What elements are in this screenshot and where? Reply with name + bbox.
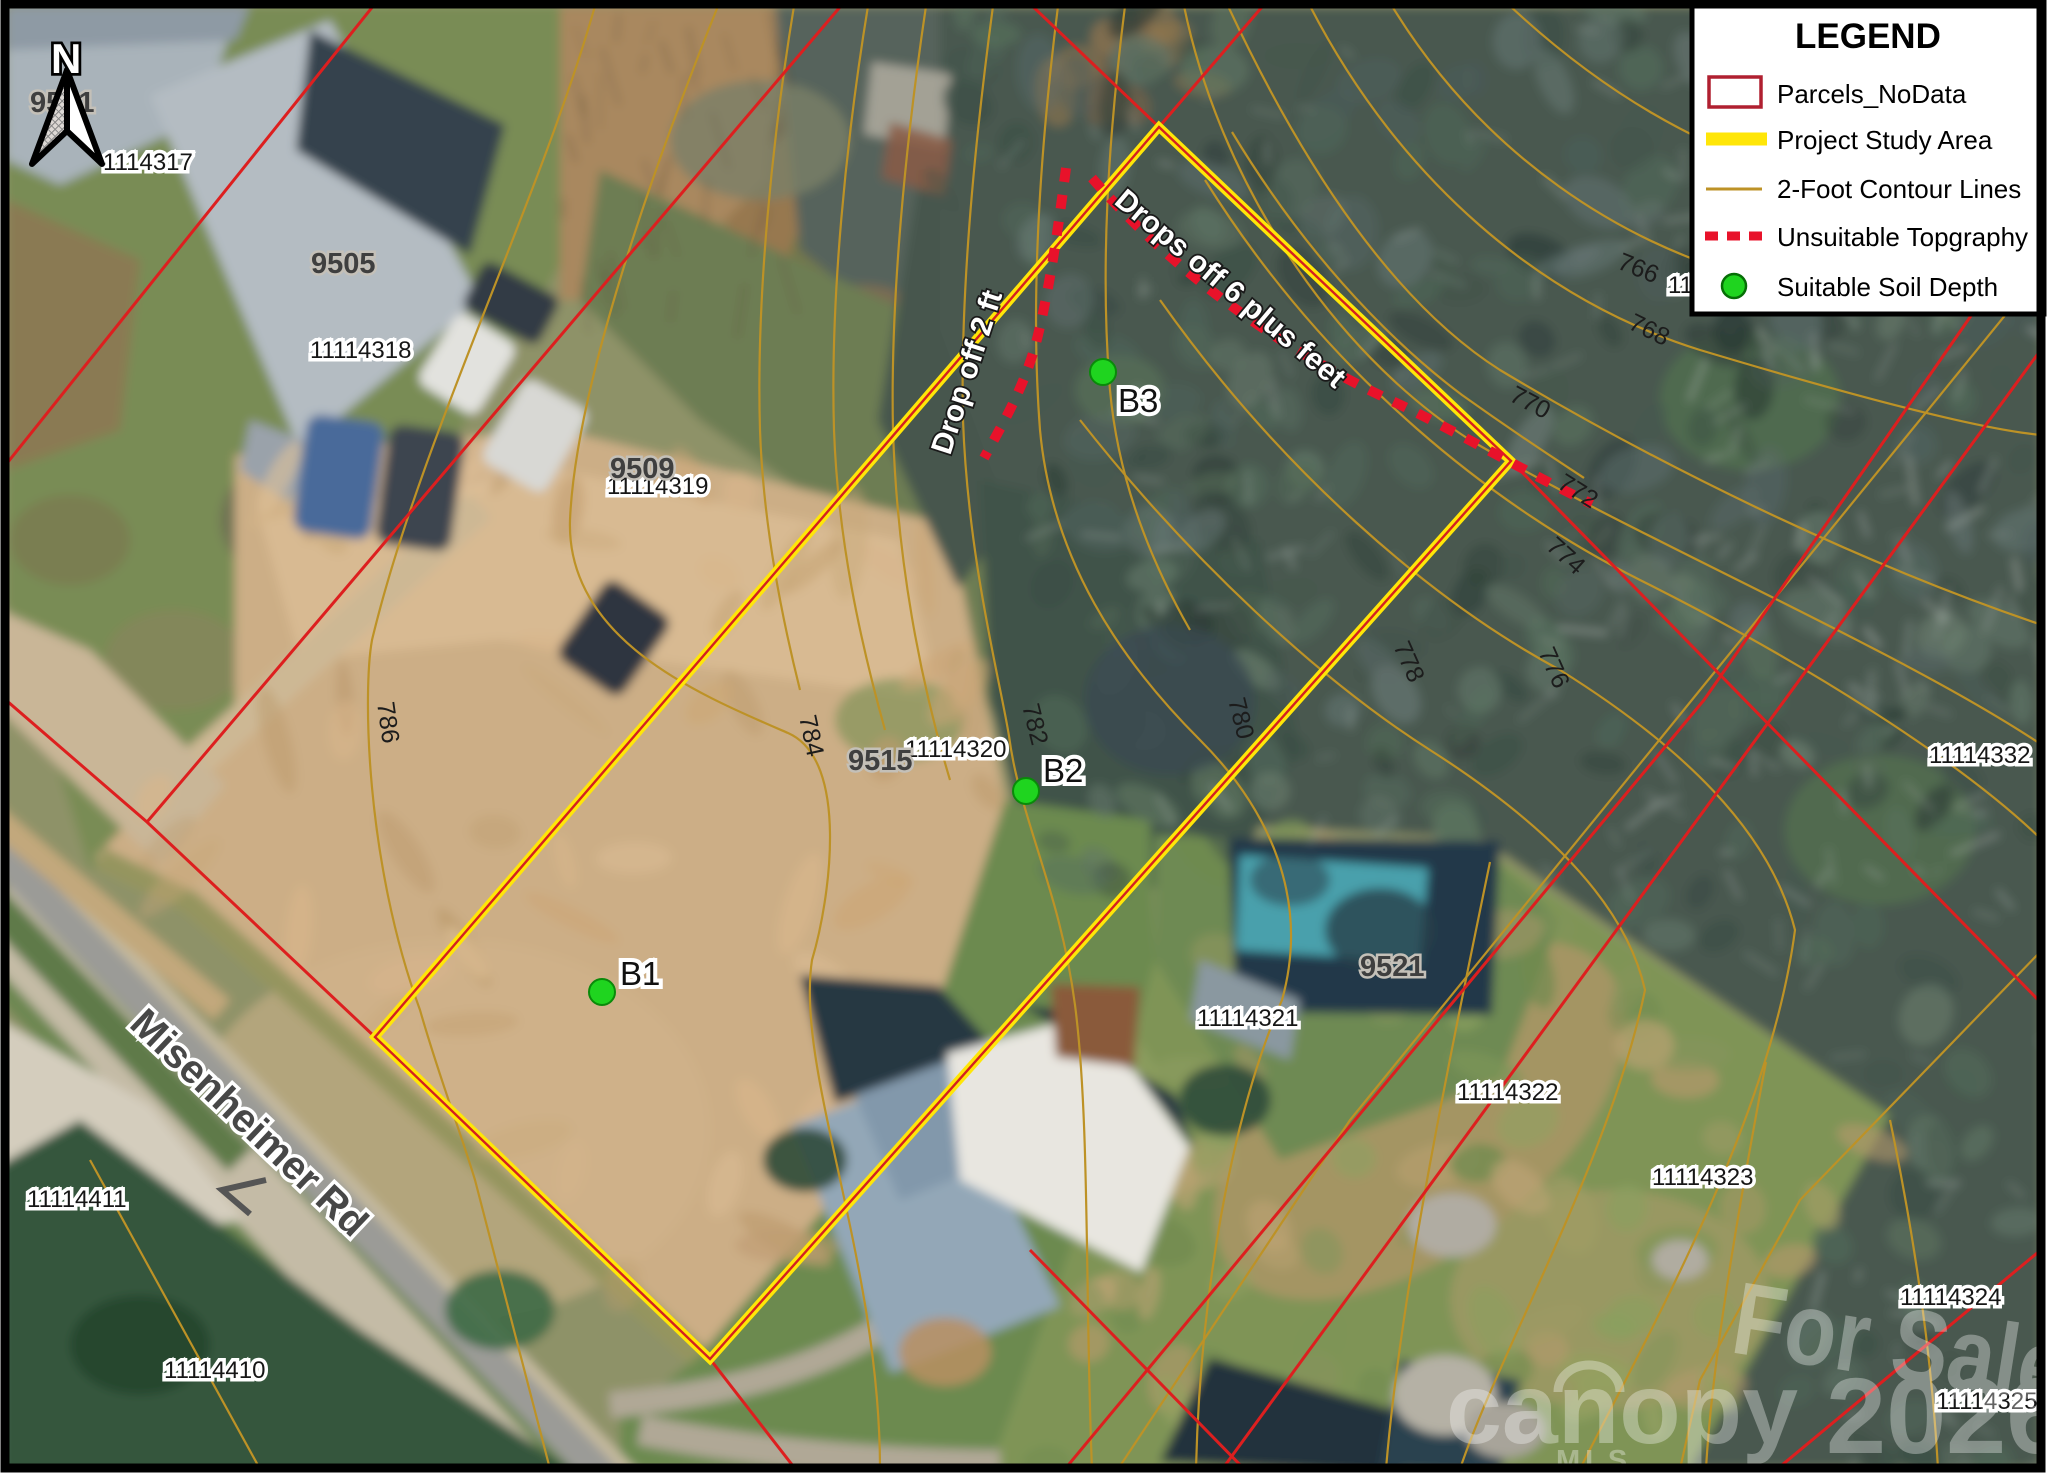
svg-text:2026: 2026 <box>1826 1355 2048 1475</box>
svg-text:Project Study Area: Project Study Area <box>1777 125 1993 155</box>
svg-text:Parcels_NoData: Parcels_NoData <box>1777 79 1967 109</box>
svg-text:11114320: 11114320 <box>905 736 1006 763</box>
svg-text:LEGEND: LEGEND <box>1795 17 1941 56</box>
svg-text:B1: B1 <box>620 955 660 992</box>
svg-text:786: 786 <box>371 700 405 745</box>
svg-text:Suitable Soil Depth: Suitable Soil Depth <box>1777 272 1998 302</box>
svg-text:2-Foot Contour Lines: 2-Foot Contour Lines <box>1777 174 2021 204</box>
svg-text:11: 11 <box>1668 272 1693 299</box>
svg-text:11114332: 11114332 <box>1929 742 2030 769</box>
svg-text:11114321: 11114321 <box>1197 1005 1298 1032</box>
svg-text:11114323: 11114323 <box>1652 1164 1753 1191</box>
svg-text:Unsuitable Topgraphy: Unsuitable Topgraphy <box>1777 222 2028 252</box>
svg-text:11114410: 11114410 <box>164 1357 265 1384</box>
svg-text:9515: 9515 <box>848 745 913 777</box>
svg-text:B2: B2 <box>1043 752 1083 789</box>
svg-text:11114318: 11114318 <box>310 337 411 364</box>
svg-text:1114317: 1114317 <box>103 149 193 176</box>
svg-text:B3: B3 <box>1118 382 1158 419</box>
svg-text:N: N <box>51 35 81 82</box>
svg-text:11114411: 11114411 <box>27 1186 127 1213</box>
svg-text:9505: 9505 <box>311 248 376 280</box>
svg-text:11114322: 11114322 <box>1457 1079 1558 1106</box>
svg-text:9521: 9521 <box>1360 951 1425 983</box>
svg-text:9509: 9509 <box>610 453 675 485</box>
